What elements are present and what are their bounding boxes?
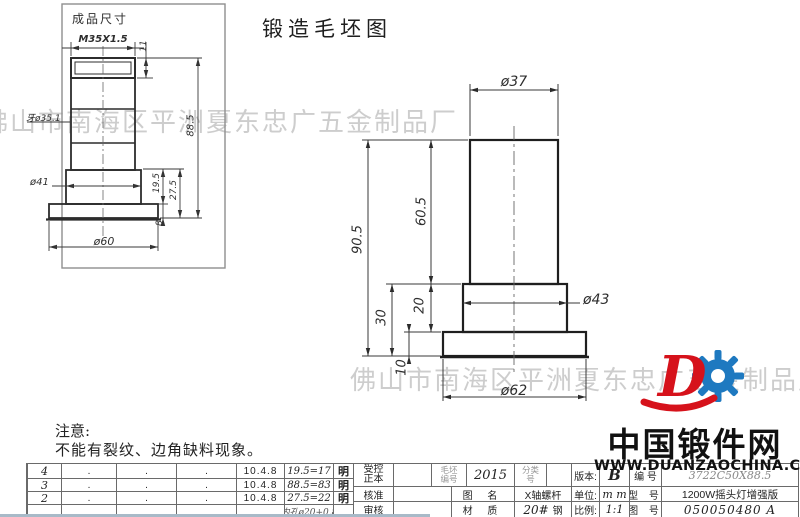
rev-sign: 明 [333,491,353,504]
rev-dot: . [176,463,236,478]
note-heading: 注意: [55,420,90,441]
dwg-no-value: 050050480 A [661,501,798,517]
rev-dot: . [116,491,176,504]
rev-change: 19.5=17 [284,463,333,478]
model-label: 型 号 [629,486,661,501]
unit-value: m m [599,486,629,501]
forging-gear-logo-icon: D [640,342,750,414]
dim-thread-od: 牙ø35.1 [26,111,61,124]
rev-dot: . [176,478,236,491]
dim-d43: ø43 [583,292,609,308]
controlled-sign-cell [393,463,431,486]
dim-195: 19.5 [152,161,162,205]
page-title: 锻造毛坯图 [262,13,392,43]
material-value-steel: 钢 [553,502,563,517]
name-label: 图 名 [451,486,514,501]
logo-site-url: WWW.DUANZAOCHINA.COM [594,458,794,474]
rev-dot: . [61,491,116,504]
rev-change: 88.5=83 [284,478,333,491]
rev-no: 2 [27,491,61,504]
dwg-no-label: 图 号 [629,501,661,517]
dim-10: 10 [395,346,410,390]
rev-date: 10.4.8 [236,491,284,504]
dim-d41: ø41 [30,177,49,188]
approve-sign-cell [393,486,451,501]
blank-no-value: 2015 [466,463,514,486]
dim-20: 20 [413,284,428,328]
rev-date: 10.4.8 [236,478,284,491]
rev-dot: . [116,463,176,478]
scale-label: 比例: [571,501,599,517]
approve-label: 核准 [353,486,393,501]
rev-dot: . [176,491,236,504]
rev-no: 3 [27,478,61,491]
rev-sign: 明 [333,463,353,478]
dim-d60: ø60 [84,235,124,248]
class-no-label-line2: 号 [526,475,535,484]
rev-change: 27.5=22 [284,491,333,504]
blank-no-label-line2: 编号 [440,475,457,484]
note-body: 不能有裂纹、边角缺料现象。 [55,439,263,460]
empty-cell [546,463,571,486]
model-value: 1200W摇头灯增强版 [661,486,798,501]
dim-30: 30 [375,296,390,340]
drawing-sheet: 佛山市南海区平洲夏东忠广五金制品厂 佛山市南海区平洲夏东忠广五金制品厂 [0,0,800,517]
dim-overall-885: 88.5 [186,104,197,148]
svg-text:D: D [656,344,707,410]
rev-dot: . [61,463,116,478]
dim-thread-length: 11 [139,24,149,68]
dim-275: 27.5 [169,168,179,212]
scale-value: 1:1 [599,501,629,517]
dim-d37: ø37 [492,74,536,90]
unit-label: 单位: [571,486,599,501]
dim-605: 60.5 [415,190,430,234]
dim-905: 90.5 [351,218,366,262]
rev-dot: . [61,478,116,491]
dim-thread-spec: M35X1.5 [70,34,136,45]
inset-label: 成品尺寸 [72,10,128,27]
dim-8: 8 [155,201,165,245]
duanzaochina-logo: D 中国锻件网 WWW.DUANZAOCHINA.COM [592,332,798,478]
rev-dot: . [116,478,176,491]
controlled-copy-line2: 正本 [364,475,384,485]
rev-date: 10.4.8 [236,463,284,478]
name-value: X轴螺杆 [514,486,571,501]
rev-sign: 明 [333,478,353,491]
dim-d62: ø62 [492,383,536,399]
rev-no: 4 [27,463,61,478]
material-label: 材 质 [451,501,514,517]
material-value-number: 20# [523,503,548,517]
